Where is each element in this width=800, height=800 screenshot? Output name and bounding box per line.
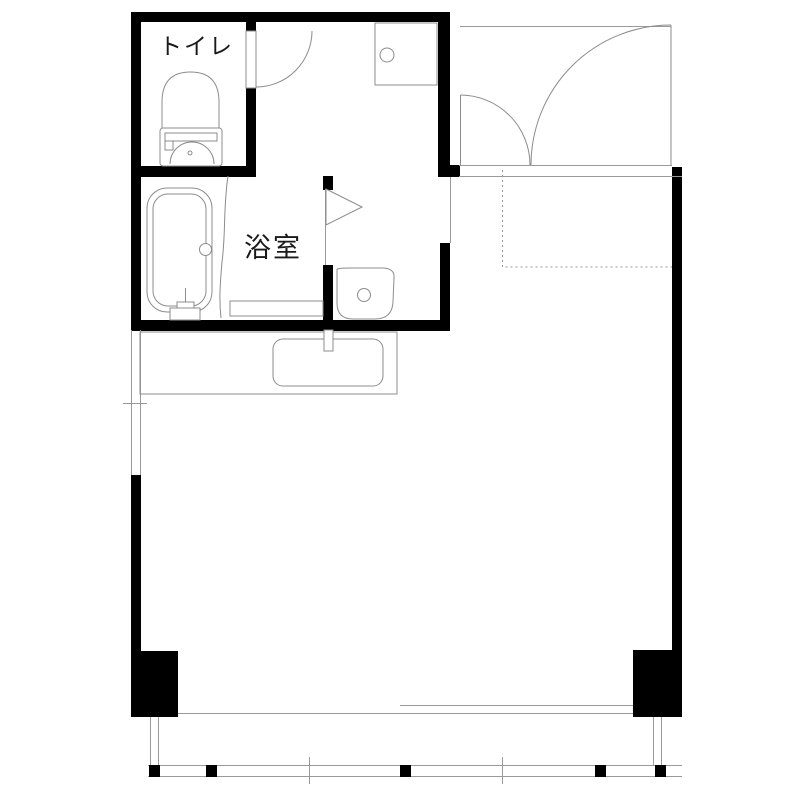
bath-ledge (230, 301, 323, 316)
floor-plan: トイレ 浴室 (0, 0, 800, 800)
wall-right (672, 167, 682, 651)
bath-folding-door (326, 189, 362, 225)
entrance-door-small-arc (461, 95, 531, 165)
kitchen-counter-top (140, 332, 397, 394)
bath-partition-curve (220, 176, 228, 318)
entrance-step-dotted-line (503, 170, 673, 267)
toilet-wall-stub (246, 22, 256, 31)
wall-left-lower (131, 475, 141, 651)
balcony-posts (149, 765, 666, 777)
bathroom-label: 浴室 (244, 226, 302, 265)
floor-plan-drawing (0, 0, 800, 800)
entrance-jamb-left (438, 165, 460, 177)
railing-post (400, 765, 411, 777)
toilet-wall-right (246, 88, 256, 177)
kitchen-counter (140, 330, 397, 394)
railing-post (149, 765, 160, 777)
washbasin (337, 268, 394, 319)
pillar-bottom-left (131, 651, 178, 717)
corridor-wall-right (440, 243, 450, 331)
bath-wall-lower (323, 265, 333, 321)
pillar-bottom-right (633, 650, 682, 717)
entrance-door-large-arc (531, 25, 671, 165)
toilet-wall-bottom (131, 166, 256, 177)
wall-top (131, 12, 450, 22)
toilet-tank (160, 128, 222, 166)
toilet-door-leaf (246, 31, 256, 88)
washing-machine-drain (380, 48, 394, 62)
railing-post (206, 765, 217, 777)
kitchen-faucet (324, 330, 333, 351)
entrance-door (461, 25, 672, 165)
toilet-door (246, 31, 312, 88)
bath-door-stub (323, 176, 333, 190)
railing-post (655, 765, 666, 777)
toilet-fixture (160, 72, 222, 166)
washing-machine-pan (375, 23, 437, 85)
railing-post (595, 765, 606, 777)
washroom-fixtures (337, 23, 437, 319)
kitchen-wall (131, 320, 450, 331)
bath-faucet-base (170, 308, 200, 320)
washroom-wall-right (438, 12, 450, 177)
toilet-door-arc (256, 31, 312, 87)
toilet-room-label: トイレ (159, 27, 234, 61)
bathtub-drain (200, 244, 212, 256)
